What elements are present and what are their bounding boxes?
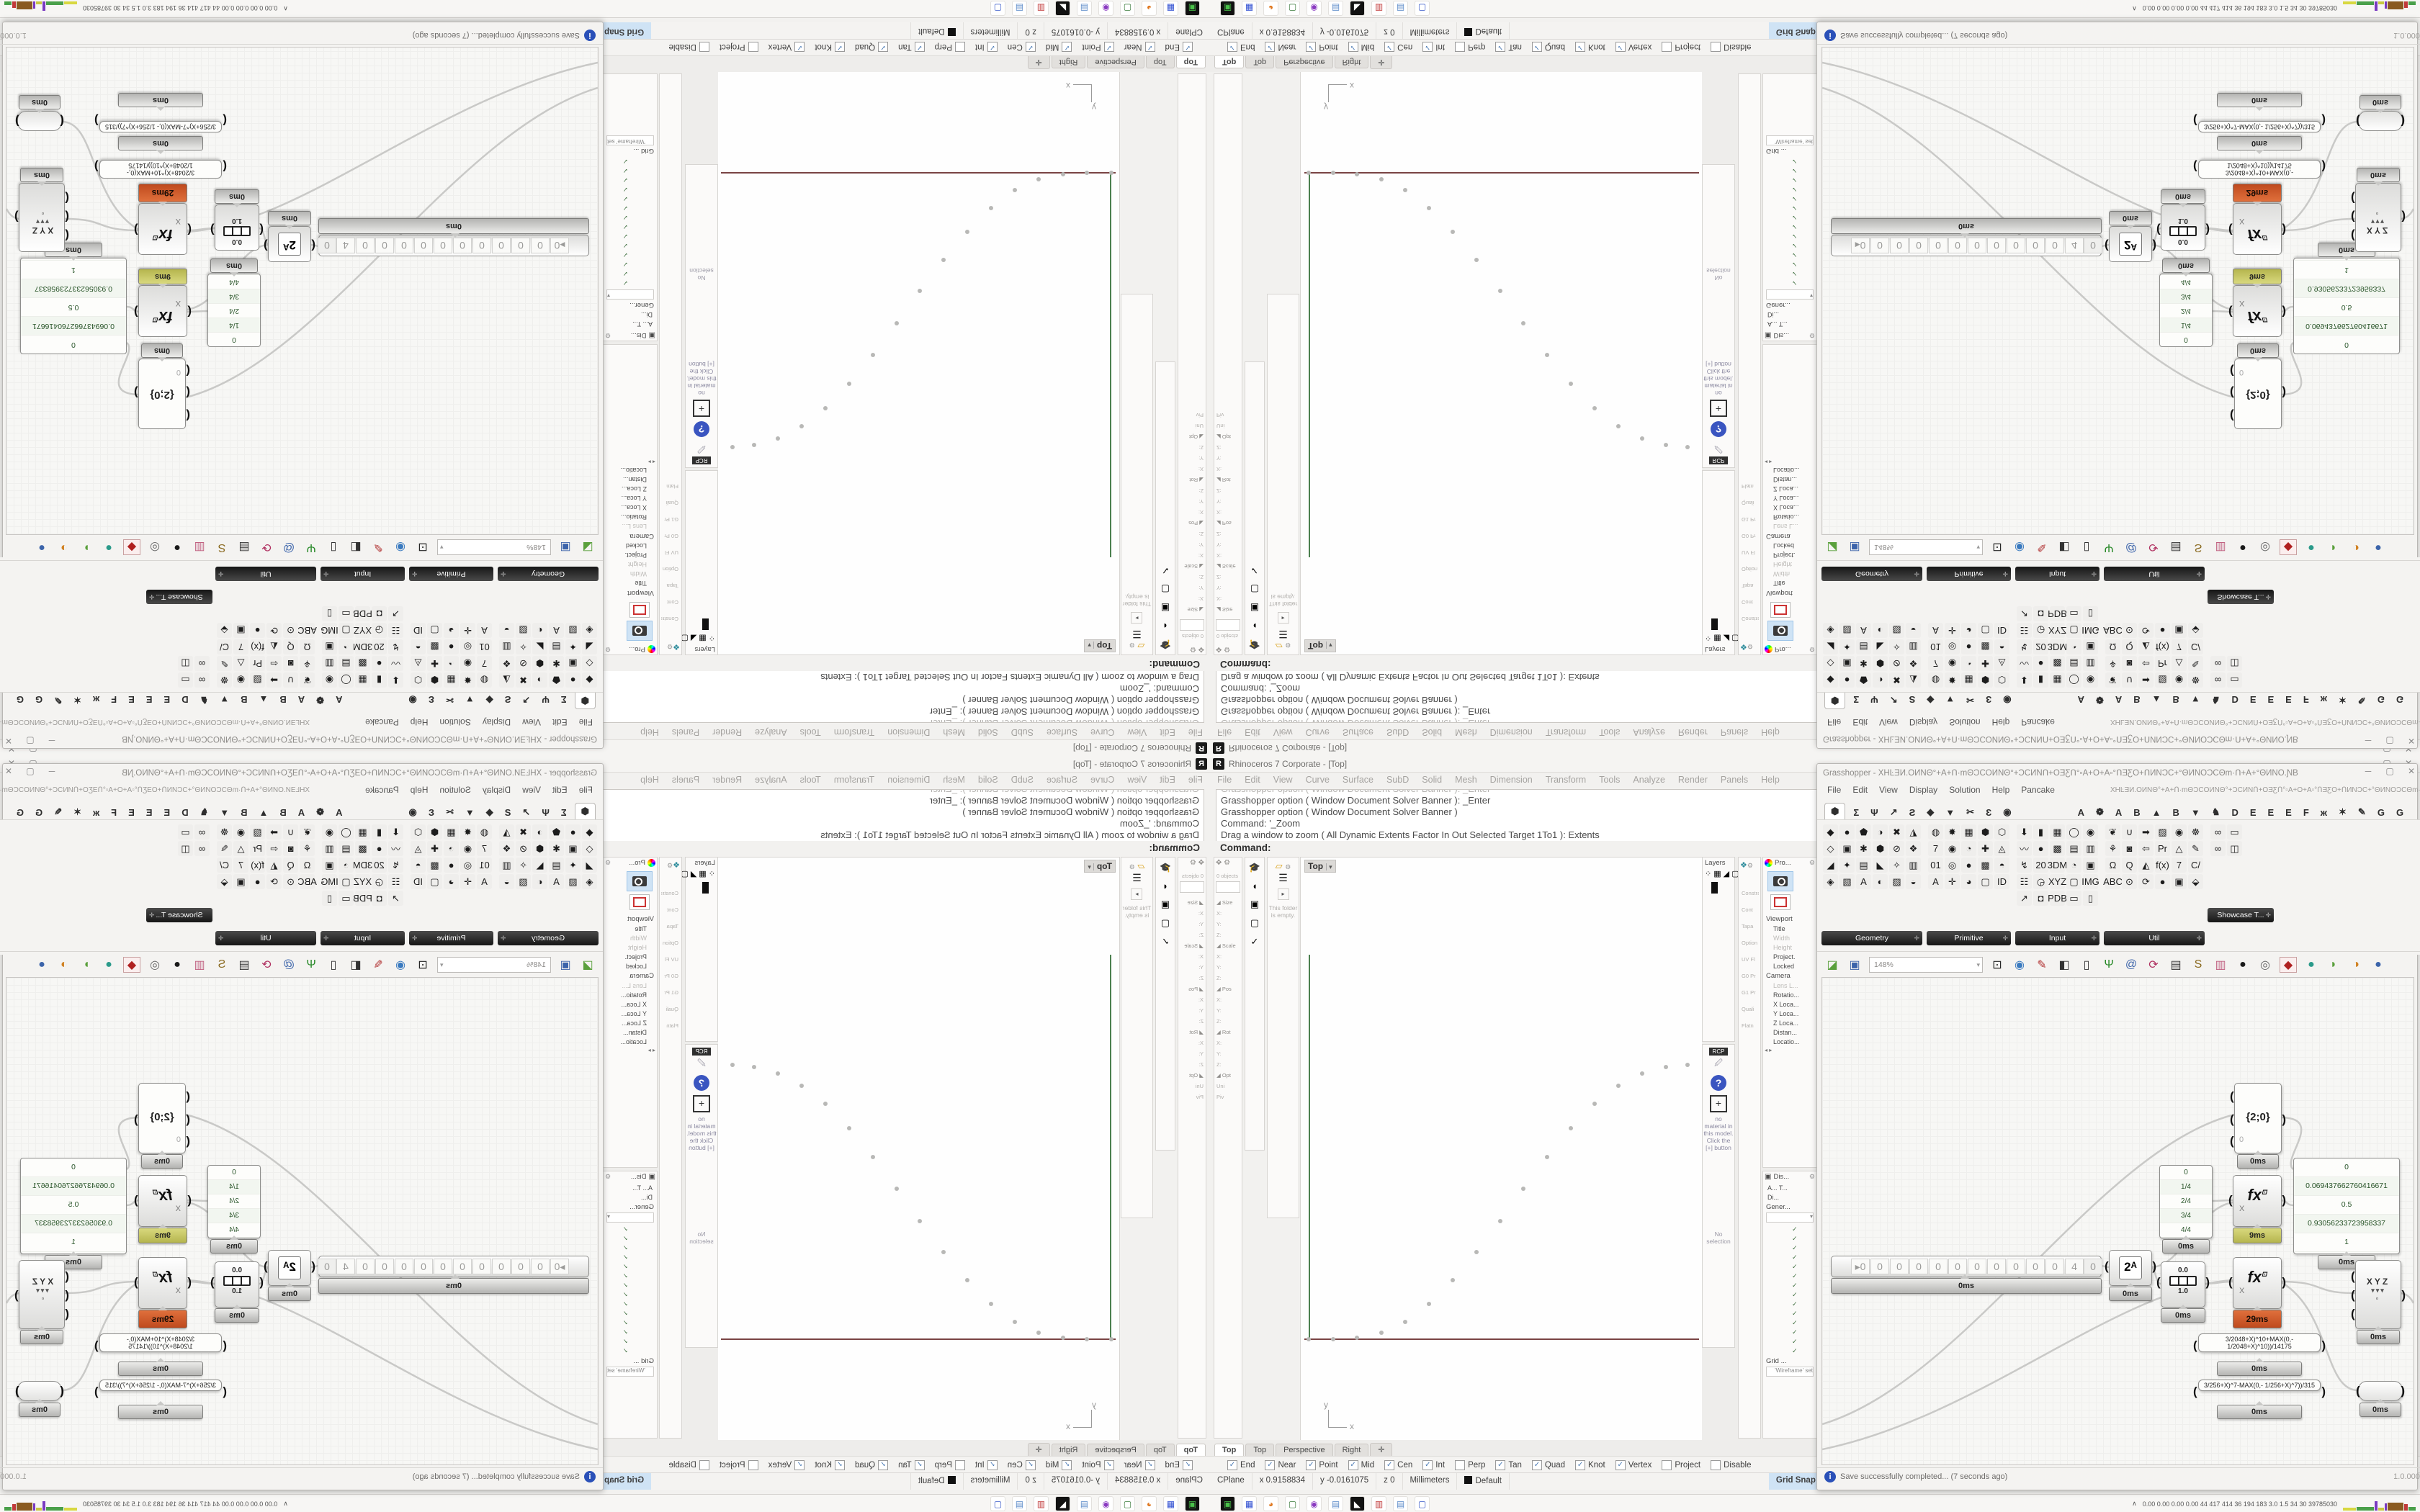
rhino-menu-transform[interactable]: Transform: [834, 727, 875, 737]
layer-color-swatch[interactable]: [702, 618, 709, 630]
gh-tab-plugin[interactable]: ✎: [2354, 693, 2370, 707]
layers-panel[interactable]: Layers ⁘▦◢▢▣: [1702, 470, 1735, 655]
palette-icon[interactable]: ◯: [2066, 824, 2081, 840]
taskbar-app-icon[interactable]: ▦: [1163, 1496, 1178, 1511]
status-default[interactable]: Default: [1457, 1473, 1509, 1490]
palette-icon[interactable]: ◑: [1873, 824, 1888, 840]
gh-tab-plugin[interactable]: G: [2374, 693, 2388, 706]
gh-toolbar-icon[interactable]: ◪: [1824, 958, 1840, 972]
help-icon[interactable]: ?: [694, 421, 709, 437]
palette-add-icon[interactable]: ✛: [149, 593, 155, 601]
gh-tab-plugin[interactable]: E: [2264, 693, 2278, 706]
gh-tab-plugin[interactable]: E: [161, 693, 174, 706]
property-row[interactable]: Project.: [604, 951, 657, 960]
rhino-menu-mesh[interactable]: Mesh: [943, 775, 965, 785]
gear-icon[interactable]: ⚙: [1190, 645, 1196, 653]
palette-icon[interactable]: ∞: [2210, 841, 2226, 856]
palette-icon[interactable]: ▨: [1889, 623, 1904, 638]
palette-icon[interactable]: ▭: [339, 891, 354, 906]
slider-digit[interactable]: 0: [434, 1259, 452, 1274]
gh-menu-edit[interactable]: Edit: [552, 785, 568, 795]
status-y-0-0161075[interactable]: y -0.0161075: [1313, 22, 1376, 39]
add-material-button[interactable]: +: [1710, 1095, 1727, 1112]
osnap-checkbox[interactable]: [748, 42, 758, 53]
menu-icon[interactable]: ☰: [1121, 872, 1152, 884]
taskbar-app-icon[interactable]: ▣: [1185, 1496, 1200, 1511]
gh-toolbar-icon[interactable]: ◉: [393, 540, 408, 554]
osnap-checkbox[interactable]: ✓: [1306, 1460, 1316, 1470]
camera-button[interactable]: [1767, 871, 1793, 891]
palette-add-icon[interactable]: ✛: [501, 570, 506, 578]
status-cplane[interactable]: CPlane: [1210, 22, 1252, 39]
left-toolbar-icon[interactable]: ▣: [1250, 899, 1259, 910]
palette-icon[interactable]: ▥: [322, 656, 337, 671]
gh-toolbar-icon[interactable]: ▯: [326, 958, 341, 972]
palette-icon[interactable]: ⬡: [1994, 824, 2009, 840]
display-checkbox[interactable]: ✓: [1763, 1280, 1816, 1290]
gh-toolbar-icon[interactable]: ●: [2303, 958, 2319, 971]
minimize-button[interactable]: ─: [2361, 766, 2375, 776]
palette-icon[interactable]: ❦: [300, 824, 315, 840]
palette-icon[interactable]: ⬡: [1994, 672, 2009, 688]
palette-icon[interactable]: ◓: [1994, 639, 2009, 654]
palette-icon[interactable]: ✱: [549, 656, 564, 671]
property-row[interactable]: Locked: [604, 960, 657, 970]
boxedit-input[interactable]: [1180, 881, 1204, 893]
taskbar-app-icon[interactable]: ◉: [1098, 1496, 1113, 1511]
palette-icon[interactable]: ❖: [1906, 656, 1921, 671]
tab-rcp[interactable]: RCP: [692, 1048, 711, 1056]
palette-icon[interactable]: ◕: [444, 874, 459, 889]
palette-icon[interactable]: ▣: [1839, 841, 1855, 856]
gh-zoom-level[interactable]: 148%: [437, 539, 551, 555]
property-row[interactable]: Lens L...: [1763, 523, 1816, 532]
palette-icon[interactable]: ◢: [1823, 639, 1838, 654]
gh-toolbar-icon[interactable]: ◑: [2348, 541, 2364, 554]
gh-menu-view[interactable]: View: [1879, 717, 1898, 727]
display-checkbox[interactable]: ✓: [604, 166, 657, 176]
osnap-project[interactable]: Project: [1662, 42, 1700, 53]
status-grid-snap[interactable]: Grid Snap: [1769, 22, 1824, 39]
gh-toolbar-icon[interactable]: ✎: [2034, 958, 2050, 972]
property-row[interactable]: Viewport: [1763, 589, 1816, 599]
frame-button[interactable]: [1770, 894, 1791, 910]
palette-icon[interactable]: ✱: [1856, 656, 1871, 671]
brush-icon[interactable]: 🖉: [686, 1057, 717, 1071]
gh-tab-plugin[interactable]: E: [2282, 693, 2295, 706]
close-button[interactable]: ✕: [2404, 766, 2419, 776]
gh-toolbar-icon[interactable]: ◆: [123, 957, 140, 973]
gh-toolbar-icon[interactable]: ▥: [2213, 958, 2228, 972]
osnap-point[interactable]: ✓Point: [1306, 42, 1337, 53]
slider-digit[interactable]: 0: [2007, 238, 2025, 253]
osnap-checkbox[interactable]: ✓: [1575, 1460, 1585, 1470]
osnap-checkbox[interactable]: ✓: [1183, 1460, 1193, 1470]
rhino-menu-render[interactable]: Render: [1678, 775, 1708, 785]
slider-digit[interactable]: 0: [2026, 238, 2045, 253]
gear-icon[interactable]: ⚙: [1809, 645, 1815, 653]
palette-icon[interactable]: ◇: [1823, 841, 1838, 856]
palette-icon[interactable]: ◮: [1906, 672, 1921, 688]
display-checkbox[interactable]: ✓: [604, 1318, 657, 1327]
taskbar-app-icon[interactable]: ▤: [1012, 1, 1027, 16]
gh-tab-main[interactable]: ✂: [1963, 693, 1978, 707]
boxedit-input[interactable]: [1216, 619, 1240, 631]
folder-panel[interactable]: ▱ ⚙ ☰ ▸ This folder is empty.: [1267, 294, 1299, 655]
gh-toolbar-icon[interactable]: ▯: [326, 540, 341, 554]
display-wireframe-box[interactable]: 'Wireframe' set: [606, 1367, 654, 1377]
left-toolbar-icon[interactable]: ✓: [1251, 564, 1259, 576]
left-toolbar-icon[interactable]: 🎓: [1160, 639, 1171, 650]
display-checkbox[interactable]: ✓: [604, 222, 657, 232]
palette-icon[interactable]: ◘: [372, 891, 387, 906]
materials-panel[interactable]: RCP 🖉 ? + no material in this model. Cli…: [685, 1044, 718, 1348]
gh-toolbar-icon[interactable]: ⊡: [415, 958, 431, 972]
gh-titlebar[interactable]: Grasshopper - XHĿƎИ.OИNΘ°+A+Ո·mΘƆCOИNΘ°+…: [0, 731, 603, 748]
palette-icon[interactable]: ◎: [1945, 858, 1960, 873]
gh-tab-plugin[interactable]: E: [161, 806, 174, 819]
palette-icon[interactable]: ▨: [250, 672, 265, 688]
viewport-tab-perspective[interactable]: Perspective: [1087, 1444, 1144, 1456]
properties-panel[interactable]: Pro...⚙ ViewportTitleWidthHeightProject.…: [1762, 344, 1817, 655]
palette-group-label[interactable]: Showcase T...✛: [2208, 590, 2274, 604]
analysis-panel[interactable]: ❖⚙ ConstraContTapaOptionUV FlG0 PrG1 PrQ…: [659, 857, 682, 1439]
palette-icon[interactable]: ▭: [178, 672, 193, 688]
osnap-quad[interactable]: ✓Quad: [1532, 42, 1565, 53]
osnap-checkbox[interactable]: [699, 1460, 709, 1470]
gh-toolbar-icon[interactable]: ◧: [2056, 958, 2072, 972]
palette-icon[interactable]: C/: [217, 639, 232, 654]
palette-icon[interactable]: ▣: [2083, 639, 2098, 654]
palette-icon[interactable]: ✎: [217, 656, 232, 671]
minimize-button[interactable]: ─: [2361, 736, 2375, 746]
palette-icon[interactable]: △: [233, 841, 248, 856]
palette-icon[interactable]: Pr: [250, 656, 265, 671]
display-checkbox[interactable]: ✓: [1763, 1336, 1816, 1346]
taskbar-app-icon[interactable]: ▤: [1393, 1496, 1408, 1511]
gh-tab-plugin[interactable]: A: [2074, 806, 2088, 819]
left-toolbar-icon[interactable]: ◖: [1252, 881, 1258, 891]
property-row[interactable]: Rotatio...: [604, 513, 657, 523]
palette-icon[interactable]: ▦: [1961, 672, 1976, 688]
palette-icon[interactable]: ◯: [339, 824, 354, 840]
properties-pager[interactable]: ◂ ▸: [604, 1045, 657, 1055]
palette-icon[interactable]: ⇦: [2138, 656, 2154, 671]
display-subtabs[interactable]: A... T...: [604, 1182, 657, 1192]
palette-icon[interactable]: ◎: [460, 639, 475, 654]
rhino-menu-analyze[interactable]: Analyze: [1633, 775, 1664, 785]
brush-icon[interactable]: 🖉: [1703, 1057, 1734, 1071]
taskbar-app-icon[interactable]: ◣: [1055, 1496, 1070, 1511]
gh-tab-plugin[interactable]: A: [295, 806, 308, 819]
property-row[interactable]: Camera: [1763, 970, 1816, 980]
gh-tab-main[interactable]: ▼: [1942, 806, 1958, 819]
gear-icon[interactable]: ⚙: [1285, 642, 1291, 649]
taskbar-app-icon[interactable]: ◣: [1350, 1, 1365, 16]
gh-tab-main[interactable]: ⬢: [575, 803, 596, 819]
rhino-menu-help[interactable]: Help: [640, 775, 659, 785]
palette-group-label[interactable]: Input✛: [321, 567, 405, 581]
taskbar-app-icon[interactable]: ▤: [1012, 1496, 1027, 1511]
gh-menu-file[interactable]: File: [1827, 717, 1841, 727]
palette-icon[interactable]: ⬙: [2188, 623, 2203, 638]
property-row[interactable]: Viewport: [1763, 913, 1816, 923]
display-tab[interactable]: Dis...: [1773, 331, 1789, 339]
palette-icon[interactable]: ⊘: [516, 841, 531, 856]
slider-digit[interactable]: 0: [1948, 1259, 1967, 1274]
palette-icon[interactable]: ◔: [339, 858, 354, 873]
palette-icon[interactable]: ◔: [2066, 858, 2081, 873]
gh-toolbar-icon[interactable]: ▤: [2168, 540, 2184, 554]
palette-icon[interactable]: ◉: [2083, 672, 2098, 688]
osnap-checkbox[interactable]: ✓: [1062, 42, 1072, 53]
taskbar-app-icon[interactable]: ▤: [1328, 1496, 1343, 1511]
tray-chevron-icon[interactable]: ∧: [2132, 4, 2137, 12]
gear-icon[interactable]: ⚙: [605, 1173, 611, 1181]
palette-icon[interactable]: ▭: [2066, 891, 2081, 906]
display-dropdown[interactable]: ▾: [606, 289, 654, 300]
status-grid-snap[interactable]: Grid Snap: [1769, 1473, 1824, 1490]
palette-icon[interactable]: 01: [477, 858, 492, 873]
materials-panel[interactable]: RCP 🖉 ? + no material in this model. Cli…: [1702, 1044, 1735, 1348]
property-row[interactable]: Height: [604, 561, 657, 570]
gh-menu-file[interactable]: File: [579, 785, 593, 795]
gh-toolbar-icon[interactable]: @: [2123, 958, 2139, 971]
osnap-checkbox[interactable]: ✓: [1615, 42, 1626, 53]
gh-tab-main[interactable]: ⬢: [1824, 693, 1845, 709]
status-y-0-0161075[interactable]: y -0.0161075: [1044, 22, 1107, 39]
property-row[interactable]: Locatio...: [604, 467, 657, 476]
frame-button[interactable]: [1770, 602, 1791, 618]
gear-icon[interactable]: ⚙: [1129, 863, 1135, 870]
property-row[interactable]: Rotatio...: [604, 989, 657, 999]
gh-menu-view[interactable]: View: [1879, 785, 1898, 795]
rhino-menu-panels[interactable]: Panels: [1721, 727, 1748, 737]
palette-icon[interactable]: ✱: [1856, 841, 1871, 856]
gh-tab-main[interactable]: ↗: [519, 805, 534, 819]
palette-icon[interactable]: ▣: [1839, 656, 1855, 671]
display-checkbox[interactable]: ✓: [604, 204, 657, 213]
palette-icon[interactable]: ◔: [339, 639, 354, 654]
gh-tab-plugin[interactable]: ❁: [2092, 693, 2107, 707]
palette-icon[interactable]: ◎: [1945, 639, 1960, 654]
taskbar-app-icon[interactable]: ▤: [1393, 1, 1408, 16]
palette-icon[interactable]: ◈: [1823, 623, 1838, 638]
gh-tab-plugin[interactable]: D: [2228, 693, 2241, 706]
gh-tab-plugin[interactable]: ✎: [2354, 805, 2370, 819]
palette-icon[interactable]: ●: [2033, 841, 2048, 856]
display-tab[interactable]: Dis...: [1773, 1173, 1789, 1181]
osnap-checkbox[interactable]: ✓: [1145, 1460, 1155, 1470]
properties-tab[interactable]: Pro...: [629, 645, 645, 653]
gh-toolbar-icon[interactable]: ⊡: [415, 540, 431, 554]
palette-icon[interactable]: ▤: [1856, 639, 1871, 654]
gh-toolbar-icon[interactable]: ▣: [557, 540, 573, 554]
gh-toolbar-icon[interactable]: ◎: [147, 540, 163, 554]
taskbar-app-icon[interactable]: ◕: [1263, 1496, 1278, 1511]
palette-icon[interactable]: ▢: [427, 623, 442, 638]
osnap-checkbox[interactable]: ✓: [1026, 42, 1036, 53]
palette-icon[interactable]: ◮: [1906, 824, 1921, 840]
gh-toolbar-icon[interactable]: @: [281, 958, 297, 971]
slider-tail-cell[interactable]: 0: [318, 1259, 336, 1274]
display-wireframe-box[interactable]: 'Wireframe' set: [606, 135, 654, 145]
property-row[interactable]: Viewport: [604, 913, 657, 923]
display-dropdown[interactable]: ▾: [1766, 1212, 1814, 1223]
palette-icon[interactable]: ◙: [283, 656, 298, 671]
status-default[interactable]: Default: [910, 22, 962, 39]
gh-toolbar-icon[interactable]: ◧: [348, 958, 364, 972]
osnap-near[interactable]: ✓Near: [1124, 1460, 1155, 1470]
tab-rcp[interactable]: RCP: [692, 456, 711, 464]
folder-icon[interactable]: ▱: [1276, 860, 1283, 871]
gh-tab-main[interactable]: Ɛ: [1982, 806, 1995, 819]
viewport-top[interactable]: Top▾ y x: [717, 857, 1120, 1441]
palette-icon[interactable]: ◒: [1906, 874, 1921, 889]
palette-icon[interactable]: ◓: [1994, 858, 2009, 873]
rhino-menu-dimension[interactable]: Dimension: [1490, 775, 1533, 785]
folder-panel[interactable]: ▱ ⚙ ☰ ▸ This folder is empty.: [1121, 857, 1153, 1218]
slider-digit-cells[interactable]: ▸000000000004: [336, 238, 569, 253]
palette-icon[interactable]: ↗: [388, 606, 403, 621]
palette-icon[interactable]: ●: [444, 639, 459, 654]
gh-toolbar-icon[interactable]: @: [281, 541, 297, 554]
gh-toolbar-icon[interactable]: ▤: [236, 540, 252, 554]
osnap-end[interactable]: ✓End: [1165, 42, 1193, 53]
display-checkbox[interactable]: ✓: [1763, 166, 1816, 176]
path-viewer[interactable]: ( ( ( 0 {2;0} ): [138, 1083, 186, 1153]
rhino-menu-dimension[interactable]: Dimension: [887, 775, 930, 785]
palette-icon[interactable]: ◘: [2033, 606, 2048, 621]
gh-tab-plugin[interactable]: E: [2246, 806, 2260, 819]
palette-icon[interactable]: ●: [2155, 874, 2170, 889]
rhino-menu-file[interactable]: File: [1217, 775, 1232, 785]
palette-icon[interactable]: ✧: [516, 858, 531, 873]
taskbar-app-icon[interactable]: ◣: [1350, 1496, 1365, 1511]
palette-add-icon[interactable]: ✛: [323, 935, 329, 942]
rhino-menu-subd[interactable]: SubD: [1011, 775, 1034, 785]
rhino-menu-view[interactable]: View: [1127, 775, 1147, 785]
palette-icon[interactable]: f(x): [2155, 639, 2170, 654]
palette-icon[interactable]: 20: [372, 858, 387, 873]
palette-icon[interactable]: ✸: [460, 824, 475, 840]
rhino-menu-solid[interactable]: Solid: [1422, 727, 1442, 737]
palette-icon[interactable]: ◆: [582, 824, 597, 840]
display-di[interactable]: Di...: [604, 311, 657, 320]
property-row[interactable]: Rotatio...: [1763, 989, 1816, 999]
palette-icon[interactable]: 20: [2033, 858, 2048, 873]
property-row[interactable]: X Loca...: [1763, 999, 1816, 1008]
viewport-tab-✛[interactable]: ✛: [1370, 56, 1392, 69]
gh-toolbar-icon[interactable]: ◉: [2012, 540, 2027, 554]
palette-add-icon[interactable]: ✛: [2002, 570, 2008, 578]
expression-text-2[interactable]: ( 3/256+X)^7-MAX(0,- 1/256+X)^7))/315 ): [99, 1380, 222, 1391]
property-row[interactable]: Camera: [604, 970, 657, 980]
palette-icon[interactable]: Pr: [250, 841, 265, 856]
gh-tab-plugin[interactable]: G: [32, 806, 46, 819]
gh-menu-display[interactable]: Display: [483, 785, 511, 795]
taskbar-app-icon[interactable]: ▢: [1120, 1496, 1135, 1511]
osnap-near[interactable]: ✓Near: [1124, 42, 1155, 53]
gh-tab-main[interactable]: Ψ: [1867, 693, 1882, 706]
palette-icon[interactable]: ▩: [1978, 639, 1993, 654]
palette-icon[interactable]: ◣: [1873, 639, 1888, 654]
gh-tab-plugin[interactable]: G: [13, 693, 27, 706]
palette-icon[interactable]: ∪: [2122, 824, 2137, 840]
palette-icon[interactable]: ✦: [1839, 639, 1855, 654]
osnap-checkbox[interactable]: ✓: [987, 1460, 998, 1470]
gh-tab-plugin[interactable]: F: [2300, 806, 2313, 819]
gh-menu-view[interactable]: View: [522, 717, 541, 727]
gh-tab-plugin[interactable]: ♞: [197, 805, 212, 819]
camera-button[interactable]: [627, 871, 653, 891]
gh-toolbar-icon[interactable]: @: [2123, 541, 2139, 554]
palette-icon[interactable]: ⟳: [2138, 874, 2154, 889]
gh-panel-fractions[interactable]: ( 01/42/43/44/4 ): [2159, 1165, 2213, 1238]
layers-icon[interactable]: ⁘: [709, 869, 715, 878]
gh-tab-plugin[interactable]: ▲: [2148, 693, 2165, 706]
property-row[interactable]: Locked: [604, 542, 657, 552]
close-button[interactable]: ✕: [2404, 736, 2419, 746]
palette-add-icon[interactable]: ✛: [2196, 935, 2202, 942]
gh-toolbar-icon[interactable]: ●: [34, 958, 50, 971]
palette-icon[interactable]: ◔: [444, 656, 459, 671]
palette-icon[interactable]: Ω: [300, 858, 315, 873]
gh-toolbar-icon[interactable]: ▥: [2213, 540, 2228, 554]
palette-icon[interactable]: PDB: [355, 891, 370, 906]
gh-menu-solution[interactable]: Solution: [1949, 717, 1980, 727]
display-checkbox[interactable]: ✓: [604, 213, 657, 222]
gh-tab-main[interactable]: Ɛ: [425, 693, 438, 706]
taskbar-app-icon[interactable]: ▦: [1242, 1, 1257, 16]
gh-panel-values[interactable]: ( 00.0694376627604166710.50.930562337239…: [20, 258, 127, 354]
gh-tab-main[interactable]: ◆: [483, 693, 497, 707]
slider-digit[interactable]: 0: [1987, 1259, 2006, 1274]
palette-icon[interactable]: ▯: [2083, 606, 2098, 621]
palette-icon[interactable]: ◉: [322, 824, 337, 840]
gh-tab-plugin[interactable]: ♞: [197, 693, 212, 707]
gh-menu-help[interactable]: Help: [411, 785, 429, 795]
display-panel[interactable]: ▣Dis...⚙ A... T... Di... Gener... ▾ ✓✓✓✓…: [1762, 1171, 1817, 1439]
property-row[interactable]: Camera: [1763, 532, 1816, 542]
property-row[interactable]: Distan...: [1763, 1027, 1816, 1036]
osnap-checkbox[interactable]: [1662, 42, 1672, 53]
gh-tab-plugin[interactable]: ж: [2317, 693, 2331, 706]
display-dropdown[interactable]: ▾: [1766, 289, 1814, 300]
osnap-checkbox[interactable]: [1455, 42, 1465, 53]
palette-icon[interactable]: ✖: [516, 672, 531, 688]
palette-icon[interactable]: ▨: [2155, 824, 2170, 840]
palette-icon[interactable]: ✸: [460, 672, 475, 688]
palette-icon[interactable]: 3DM: [2050, 858, 2065, 873]
gh-zoom-level[interactable]: 148%: [1869, 957, 1983, 973]
palette-icon[interactable]: ●: [1961, 639, 1976, 654]
gh-tab-plugin[interactable]: D: [178, 693, 192, 706]
gh-toolbar-icon[interactable]: ◎: [2257, 540, 2273, 554]
slider-digit[interactable]: 0: [531, 238, 550, 253]
palette-icon[interactable]: ➡: [2138, 824, 2154, 840]
palette-icon[interactable]: ◐: [532, 874, 547, 889]
gh-zoom-level[interactable]: 148%: [437, 957, 551, 973]
palette-icon[interactable]: ▨: [516, 623, 531, 638]
slider-digit[interactable]: 0: [1909, 238, 1928, 253]
gear-icon[interactable]: ⚙: [1129, 642, 1135, 649]
boxedit-input[interactable]: [1180, 619, 1204, 631]
gh-toolbar-icon[interactable]: ●: [169, 958, 185, 971]
gh-toolbar-icon[interactable]: Ψ: [2101, 541, 2117, 554]
palette-icon[interactable]: ▤: [549, 858, 564, 873]
palette-icon[interactable]: ✚: [1978, 656, 1993, 671]
